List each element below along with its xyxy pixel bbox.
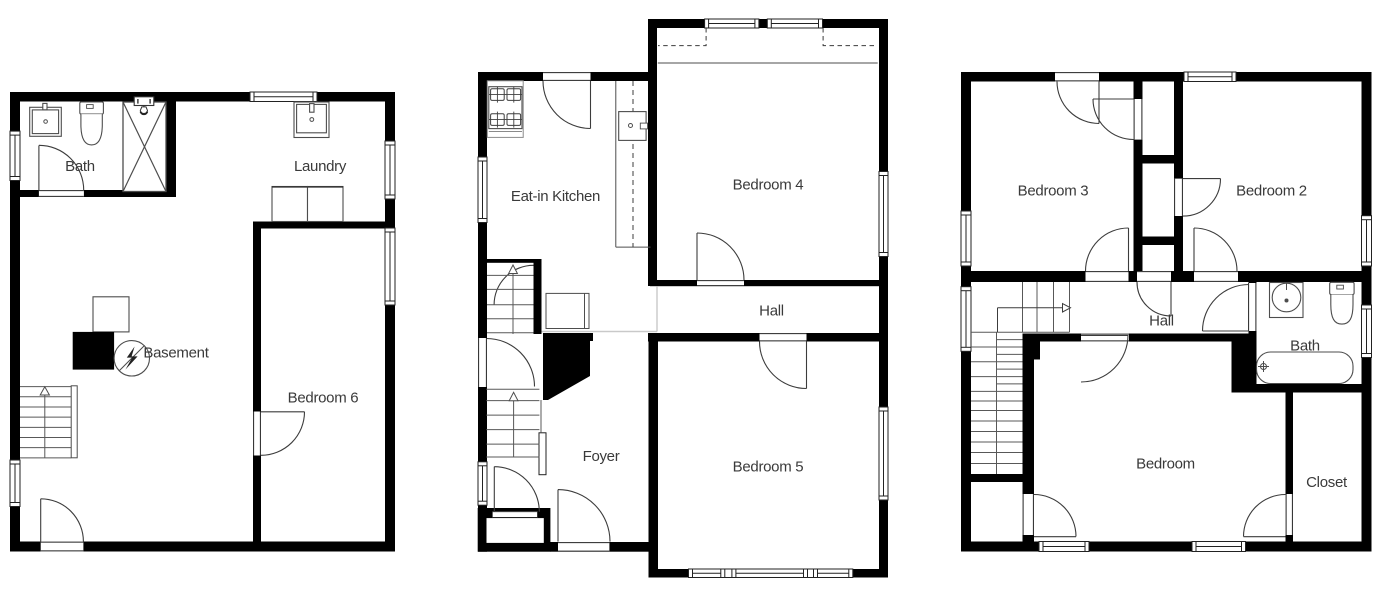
svg-text:Bedroom 2: Bedroom 2 (1236, 183, 1307, 200)
svg-text:Bedroom 3: Bedroom 3 (1018, 183, 1089, 200)
svg-text:Foyer: Foyer (583, 448, 620, 465)
svg-text:Eat-in Kitchen: Eat-in Kitchen (511, 188, 600, 205)
svg-text:Bedroom 6: Bedroom 6 (288, 390, 359, 407)
svg-text:Basement: Basement (143, 345, 209, 362)
svg-text:Bedroom 5: Bedroom 5 (733, 459, 804, 476)
svg-text:Hall: Hall (1149, 313, 1174, 330)
svg-text:Bath: Bath (65, 158, 95, 175)
svg-text:Bedroom: Bedroom (1136, 456, 1195, 473)
svg-text:Hall: Hall (759, 303, 784, 320)
svg-text:Bath: Bath (1290, 338, 1320, 355)
svg-text:Laundry: Laundry (294, 158, 347, 175)
svg-text:Closet: Closet (1306, 474, 1348, 491)
svg-text:Bedroom 4: Bedroom 4 (733, 177, 804, 194)
